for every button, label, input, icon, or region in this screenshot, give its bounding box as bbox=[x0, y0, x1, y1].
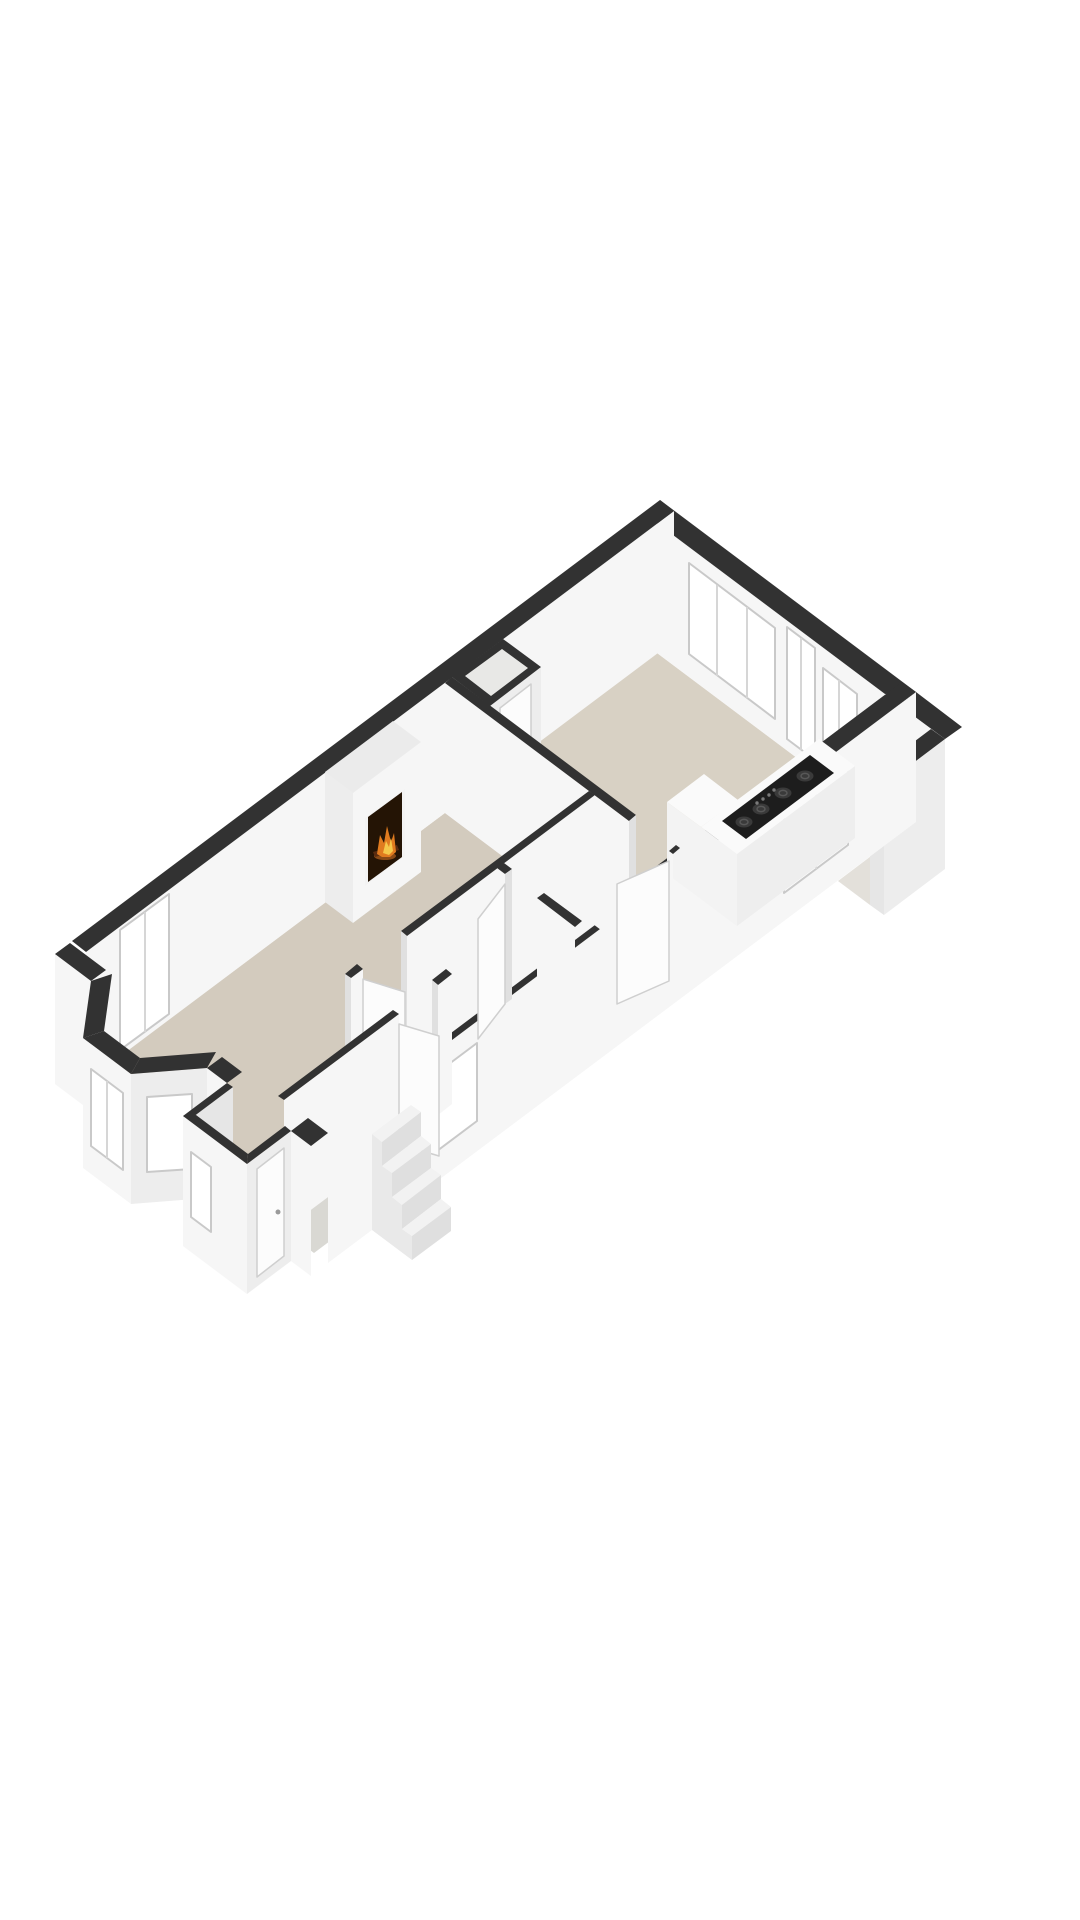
burner-1 bbox=[797, 771, 814, 782]
cooktop-knob bbox=[772, 788, 775, 791]
door-jamb bbox=[505, 869, 512, 1004]
floor-plan-render bbox=[0, 0, 1080, 1920]
burner-4 bbox=[736, 817, 753, 828]
porch-window bbox=[191, 1152, 211, 1232]
sw-wall-right-face bbox=[291, 1131, 311, 1276]
floor-plan-page bbox=[0, 0, 1080, 1920]
cooktop-knob bbox=[761, 797, 764, 800]
front-door-handle bbox=[276, 1210, 281, 1215]
cooktop-knob bbox=[755, 801, 758, 804]
chimney-face-sw bbox=[325, 772, 353, 923]
cooktop-knob bbox=[767, 793, 770, 796]
burner-3 bbox=[753, 804, 770, 815]
kitchen-door-leaf bbox=[617, 861, 669, 1004]
burner-2 bbox=[775, 788, 792, 799]
wall-face bbox=[438, 974, 452, 1115]
